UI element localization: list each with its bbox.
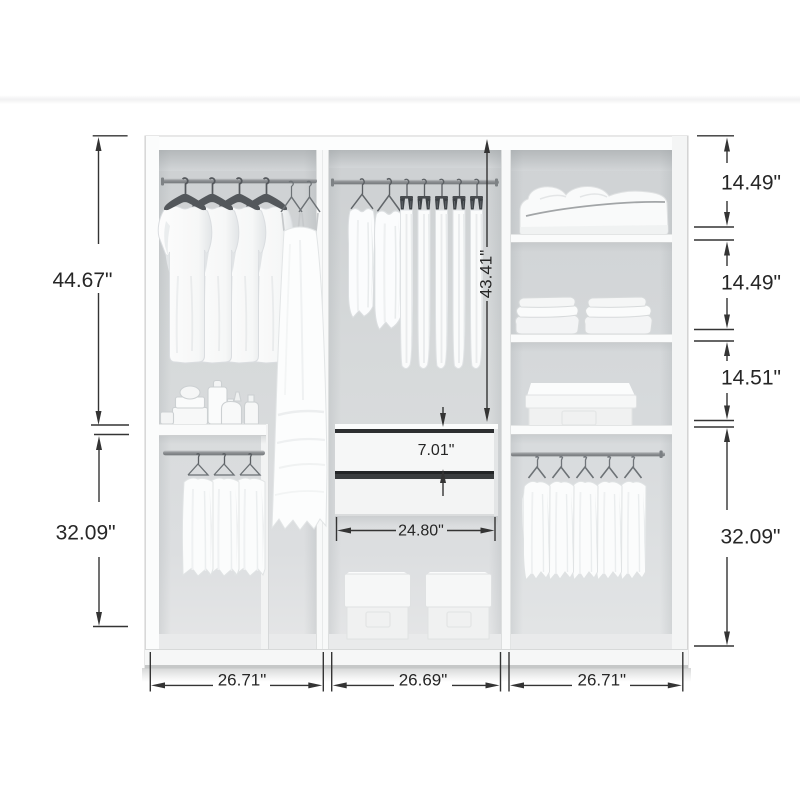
svg-text:43.41": 43.41" <box>477 250 496 299</box>
svg-text:26.71": 26.71" <box>578 671 627 690</box>
svg-text:32.09": 32.09" <box>720 526 780 549</box>
svg-text:44.67": 44.67" <box>52 269 112 292</box>
svg-text:26.69": 26.69" <box>399 671 448 690</box>
svg-text:14.51": 14.51" <box>721 367 781 390</box>
svg-text:26.71": 26.71" <box>218 671 267 690</box>
svg-text:24.80": 24.80" <box>398 523 444 540</box>
svg-text:14.49": 14.49" <box>721 272 781 295</box>
svg-text:14.49": 14.49" <box>721 172 781 195</box>
svg-text:32.09": 32.09" <box>56 522 116 545</box>
svg-text:7.01": 7.01" <box>418 442 455 459</box>
